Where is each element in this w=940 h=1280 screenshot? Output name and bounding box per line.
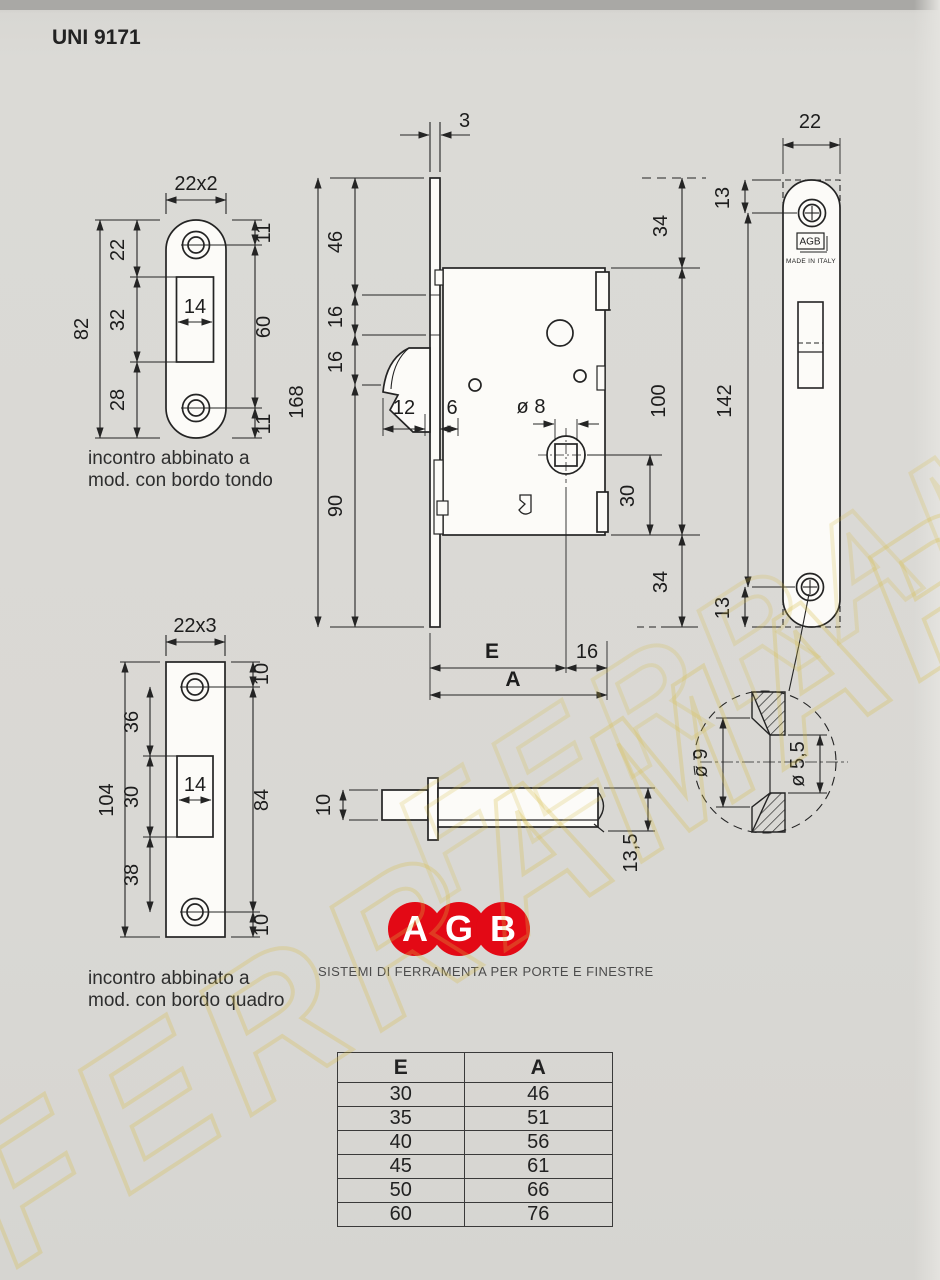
front-plate [783,180,840,691]
dim-46: 46 [325,231,347,253]
logo-circle-b: B [476,902,530,956]
dim-6: 6 [446,397,457,419]
dim-16c: 16 [576,641,598,663]
scanned-sheet: FERRAMAR FERRAMAR UNI 9171 incontro abbi… [0,0,940,1280]
dim-34-bot: 34 [650,571,672,593]
dim-12: 12 [393,397,415,419]
dim-16b: 16 [325,351,347,373]
cell-a: 56 [464,1131,613,1155]
lock-body [383,178,611,627]
cell-a: 76 [464,1203,613,1227]
agb-logo: A G B [388,902,530,956]
front-plate-brand: AGB [799,237,820,248]
dim-104: 104 [96,783,118,816]
dim-90: 90 [325,495,347,517]
dim-30c: 30 [617,485,639,507]
dim-pin-135: 13,5 [620,834,642,873]
dim-fp-22: 22 [799,111,821,133]
dim-16a: 16 [325,306,347,328]
dim-E: E [485,640,499,663]
dim-spindle: ø 8 [517,396,546,418]
dim-fp-142: 142 [714,384,736,417]
table-row: 4561 [338,1155,613,1179]
col-header-a: A [464,1053,613,1083]
front-plate-made-in: MADE IN ITALY [786,258,836,265]
cell-e: 40 [338,1131,465,1155]
dim-82: 82 [71,318,93,340]
dim-14: 14 [184,296,206,318]
dim-32: 32 [107,309,129,331]
dim-fp-13b: 13 [712,597,734,619]
cell-e: 50 [338,1179,465,1203]
table-row: 3551 [338,1107,613,1131]
cell-e: 60 [338,1203,465,1227]
dim-11-bot: 11 [253,414,275,435]
dim-14b: 14 [184,774,206,796]
cell-e: 45 [338,1155,465,1179]
dim-22x3: 22x3 [173,615,216,637]
cell-e: 35 [338,1107,465,1131]
dim-28: 28 [107,389,129,411]
dim-3: 3 [459,110,470,132]
dim-fp-13t: 13 [712,187,734,209]
dim-d9: ø 9 [690,749,712,778]
dim-22: 22 [107,239,129,261]
dim-34-top: 34 [650,215,672,237]
cell-a: 66 [464,1179,613,1203]
table-header-row: E A [338,1053,613,1083]
dim-d55: ø 5,5 [787,741,809,787]
countersink-detail [694,691,848,833]
dim-22x2: 22x2 [174,173,217,195]
latch-pin [382,778,604,840]
dim-30: 30 [121,786,143,808]
dim-168: 168 [286,385,308,418]
dim-10-top: 10 [251,663,273,685]
dim-A: A [505,668,520,691]
dim-100: 100 [648,384,670,417]
cell-a: 61 [464,1155,613,1179]
dim-38: 38 [121,864,143,886]
logo-tagline: SISTEMI DI FERRAMENTA PER PORTE E FINEST… [318,964,654,979]
table-row: 6076 [338,1203,613,1227]
backset-table: E A 3046 3551 4056 4561 5066 6076 [337,1052,613,1227]
col-header-e: E [338,1053,465,1083]
cell-a: 51 [464,1107,613,1131]
table-row: 4056 [338,1131,613,1155]
dim-60: 60 [253,316,275,338]
dim-36: 36 [121,711,143,733]
dim-pin-10: 10 [313,794,335,816]
cell-a: 46 [464,1083,613,1107]
dim-84: 84 [251,789,273,811]
dim-10-bot: 10 [251,914,273,936]
dim-11-top: 11 [253,223,275,244]
round-strike-plate [166,220,226,438]
cell-e: 30 [338,1083,465,1107]
table-row: 3046 [338,1083,613,1107]
table-row: 5066 [338,1179,613,1203]
